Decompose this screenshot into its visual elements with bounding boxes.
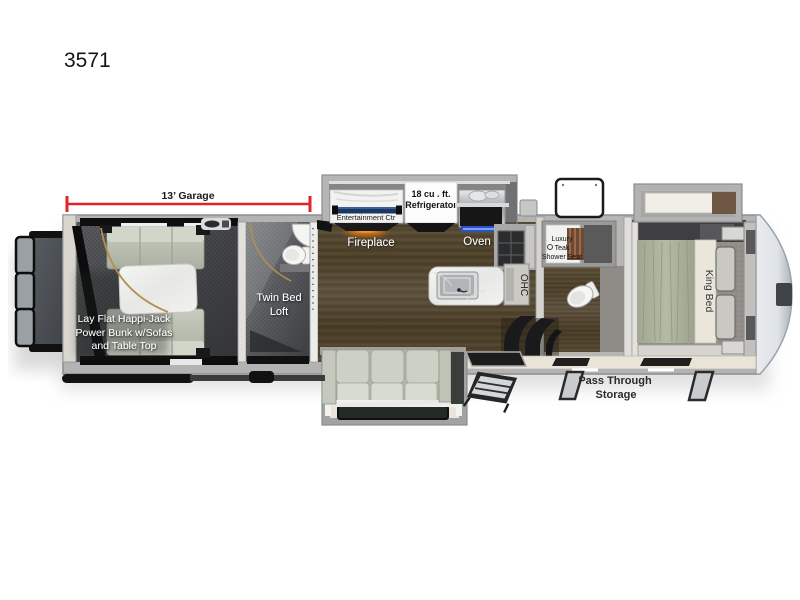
svg-text:Power Bunk w/Sofas: Power Bunk w/Sofas [76,327,173,339]
svg-text:Twin Bed: Twin Bed [256,292,301,304]
svg-text:Shower Seat: Shower Seat [542,254,582,261]
svg-text:Lay Flat Happi-Jack: Lay Flat Happi-Jack [78,313,172,325]
svg-text:3571: 3571 [64,49,111,72]
svg-text:Oven: Oven [463,236,491,248]
svg-text:OHC: OHC [518,274,529,296]
svg-text:Luxury: Luxury [551,236,573,243]
svg-text:18 cu . ft.: 18 cu . ft. [411,189,450,199]
svg-text:Pass Through: Pass Through [578,375,652,387]
svg-text:King Bed: King Bed [703,270,715,313]
svg-text:Refrigerator: Refrigerator [405,200,457,210]
svg-text:13’ Garage: 13’ Garage [161,190,214,202]
svg-text:Teak: Teak [555,245,570,252]
svg-text:Entertainment Ctr: Entertainment Ctr [337,213,396,222]
svg-text:Storage: Storage [596,389,637,401]
svg-text:and Table Top: and Table Top [91,340,156,352]
svg-text:Loft: Loft [270,306,288,318]
svg-text:Fireplace: Fireplace [347,237,394,249]
